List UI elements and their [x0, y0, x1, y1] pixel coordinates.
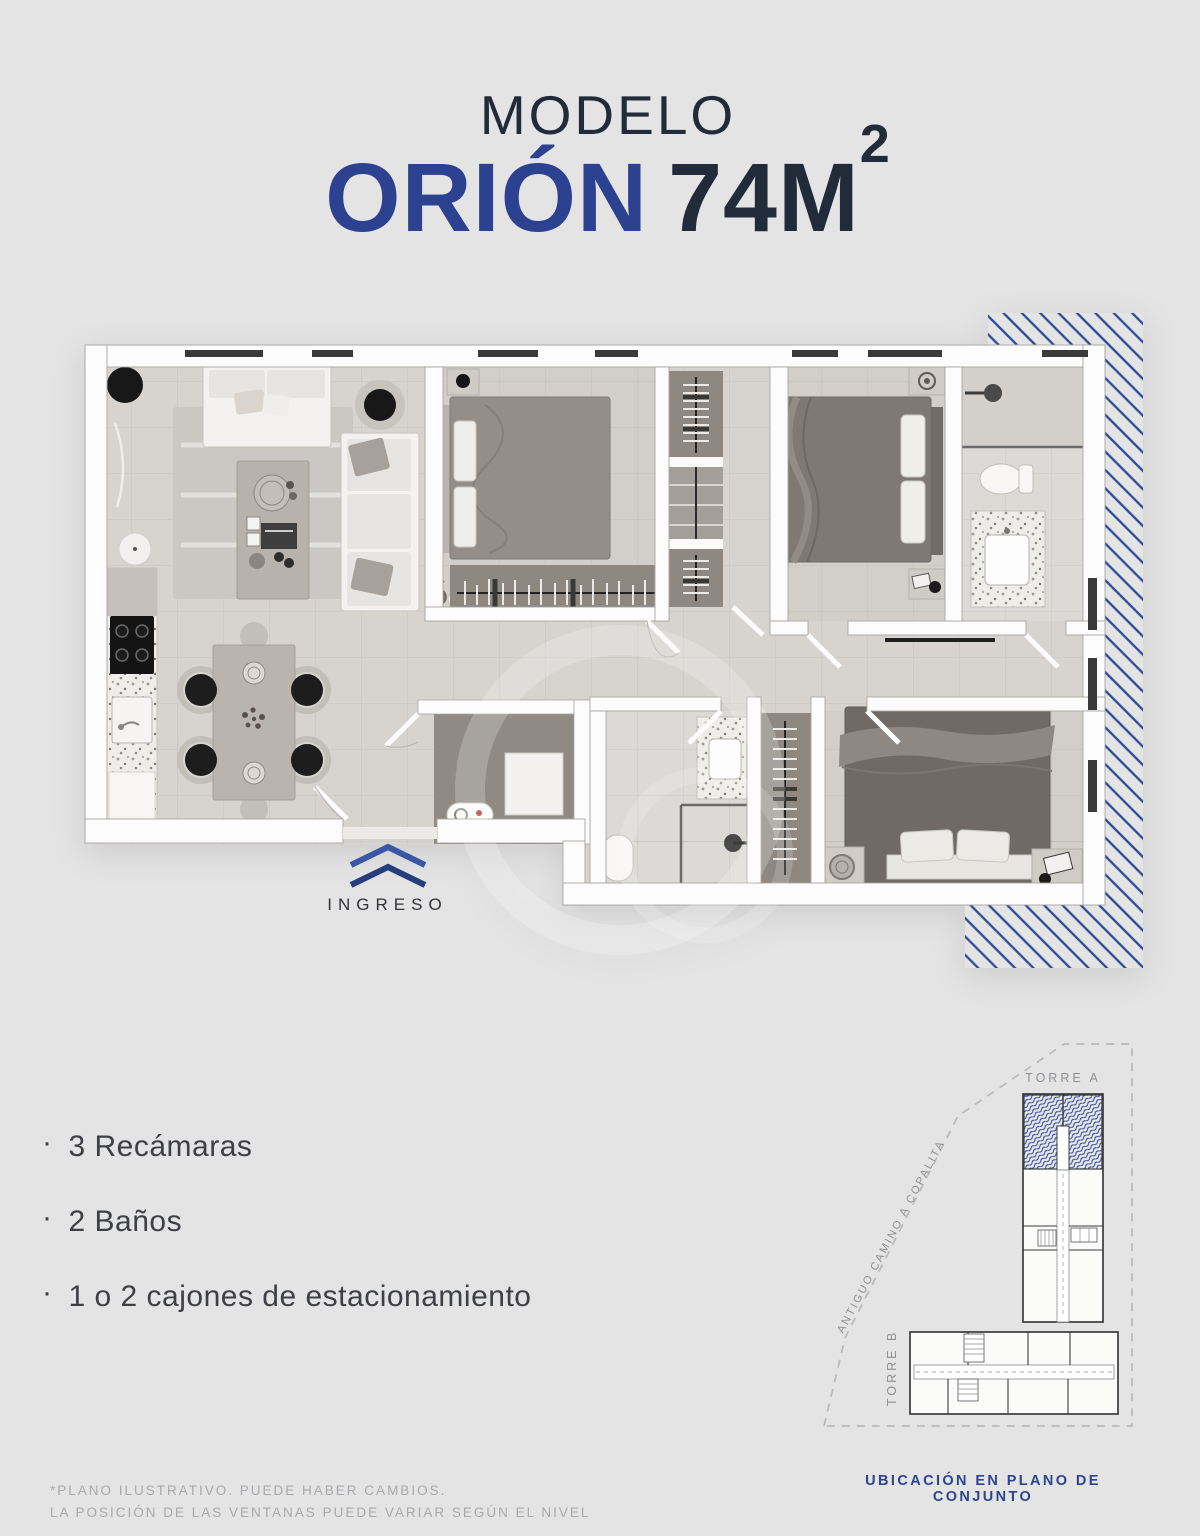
entry-label: INGRESO [305, 895, 470, 915]
site-location-map: ANTIGUO CAMINO A COPALITA TORRE A TORRE … [818, 1038, 1148, 1505]
feature-text: 2 Baños [69, 1205, 183, 1238]
feature-bedrooms: ·3 Recámaras [42, 1130, 531, 1164]
page-title: MODELO ORIÓN74M2 [8, 88, 1200, 246]
tower-a-label: TORRE A [1025, 1071, 1101, 1085]
road-label: ANTIGUO CAMINO A COPALITA [835, 1138, 948, 1335]
disclaimer-line-1: *PLANO ILUSTRATIVO. PUEDE HABER CAMBIOS. [50, 1480, 590, 1502]
flyer-page: { "title": { "pretitle": "MODELO", "mode… [0, 0, 1200, 1536]
disclaimer-line-2: LA POSICIÓN DE LAS VENTANAS PUEDE VARIAR… [50, 1502, 590, 1524]
floor-plan [85, 335, 1160, 945]
sitemap-caption: UBICACIÓN EN PLANO DE CONJUNTO [818, 1473, 1148, 1505]
bullet: · [42, 1126, 53, 1160]
feature-text: 1 o 2 cajones de estacionamiento [69, 1280, 532, 1313]
ingreso-arrow-icon [345, 843, 431, 891]
model-name: ORIÓN [325, 143, 648, 252]
feature-list: ·3 Recámaras ·2 Baños ·1 o 2 cajones de … [42, 1130, 531, 1355]
floor-plan-image [85, 335, 1160, 945]
model-area-exponent: 2 [860, 114, 891, 174]
bedroom-3 [820, 707, 1082, 887]
model-title-line: ORIÓN74M2 [8, 149, 1200, 246]
tower-b-label: TORRE B [885, 1330, 899, 1406]
model-area: 74M [668, 143, 860, 252]
kitchen [107, 568, 157, 823]
bullet: · [42, 1201, 53, 1235]
tower-a-building [1023, 1094, 1103, 1322]
entry-marker: INGRESO [305, 843, 470, 915]
model-pretitle: MODELO [8, 88, 1200, 143]
site-map-image: ANTIGUO CAMINO A COPALITA TORRE A TORRE … [818, 1038, 1148, 1458]
feature-text: 3 Recámaras [69, 1130, 253, 1163]
tower-b-building [910, 1332, 1118, 1414]
feature-bathrooms: ·2 Baños [42, 1205, 531, 1239]
disclaimer: *PLANO ILUSTRATIVO. PUEDE HABER CAMBIOS.… [50, 1480, 590, 1523]
hall-closets [669, 371, 723, 607]
bullet: · [42, 1276, 53, 1310]
feature-parking: ·1 o 2 cajones de estacionamiento [42, 1280, 531, 1314]
